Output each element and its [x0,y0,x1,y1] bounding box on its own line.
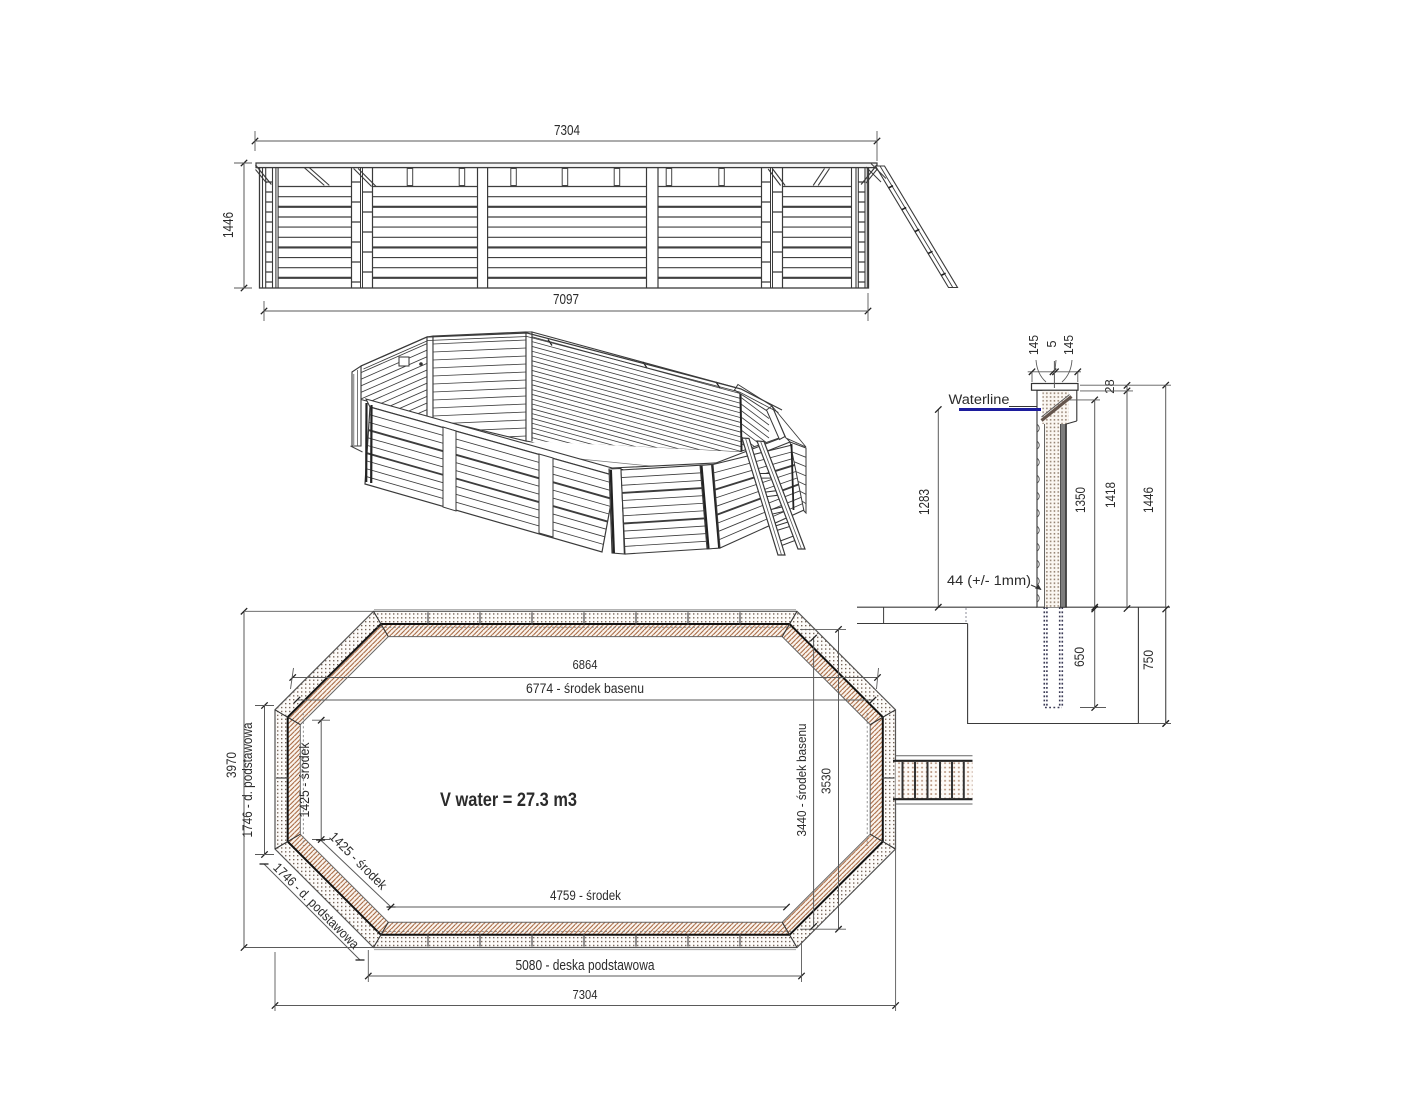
svg-text:Waterline: Waterline [949,392,1010,407]
svg-text:1446: 1446 [1140,487,1156,513]
svg-text:3440 - środek basenu: 3440 - środek basenu [794,724,809,837]
svg-text:5080 - deska podstawowa: 5080 - deska podstawowa [516,957,656,974]
svg-text:6864: 6864 [573,657,598,672]
svg-text:7097: 7097 [553,291,579,308]
svg-text:750: 750 [1140,650,1156,670]
svg-text:1418: 1418 [1102,482,1118,508]
svg-text:145: 145 [1061,335,1076,355]
svg-text:650: 650 [1071,647,1087,667]
svg-text:5: 5 [1044,340,1059,347]
svg-text:1350: 1350 [1072,487,1088,513]
svg-text:3970: 3970 [223,752,239,778]
svg-text:6774 - środek basenu: 6774 - środek basenu [526,681,644,696]
svg-text:3530: 3530 [819,768,834,794]
svg-text:V water = 27.3 m3: V water = 27.3 m3 [440,790,577,811]
svg-text:7304: 7304 [573,987,598,1002]
svg-text:1283: 1283 [917,489,933,515]
svg-text:1446: 1446 [220,212,237,238]
svg-text:28: 28 [1102,379,1117,393]
svg-text:4759 - środek: 4759 - środek [550,888,621,903]
svg-text:7304: 7304 [554,122,580,139]
svg-text:1746 - d. podstawowa: 1746 - d. podstawowa [240,722,255,837]
svg-text:1425 - środek: 1425 - środek [297,742,312,817]
svg-text:44 (+/- 1mm): 44 (+/- 1mm) [947,572,1031,588]
svg-text:145: 145 [1026,335,1041,355]
